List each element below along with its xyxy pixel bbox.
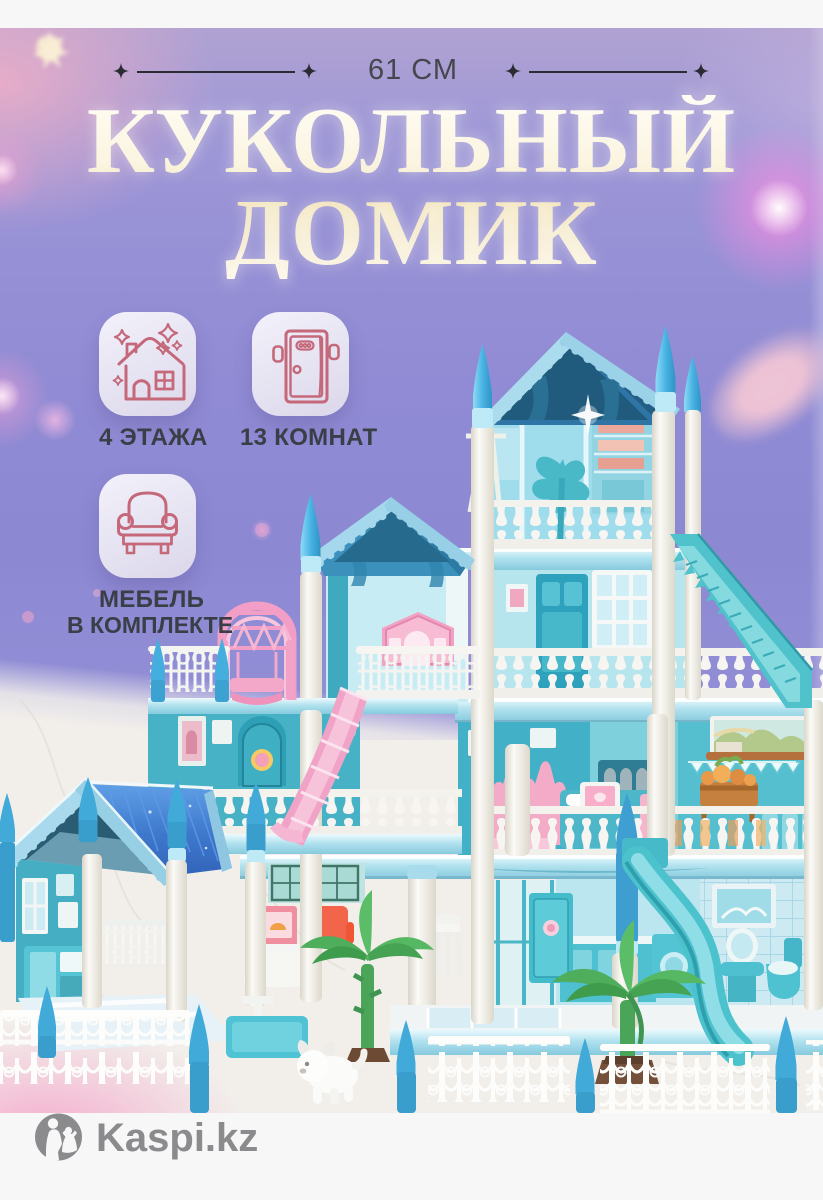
svg-text:Kaspi.kz: Kaspi.kz [96,1116,258,1160]
